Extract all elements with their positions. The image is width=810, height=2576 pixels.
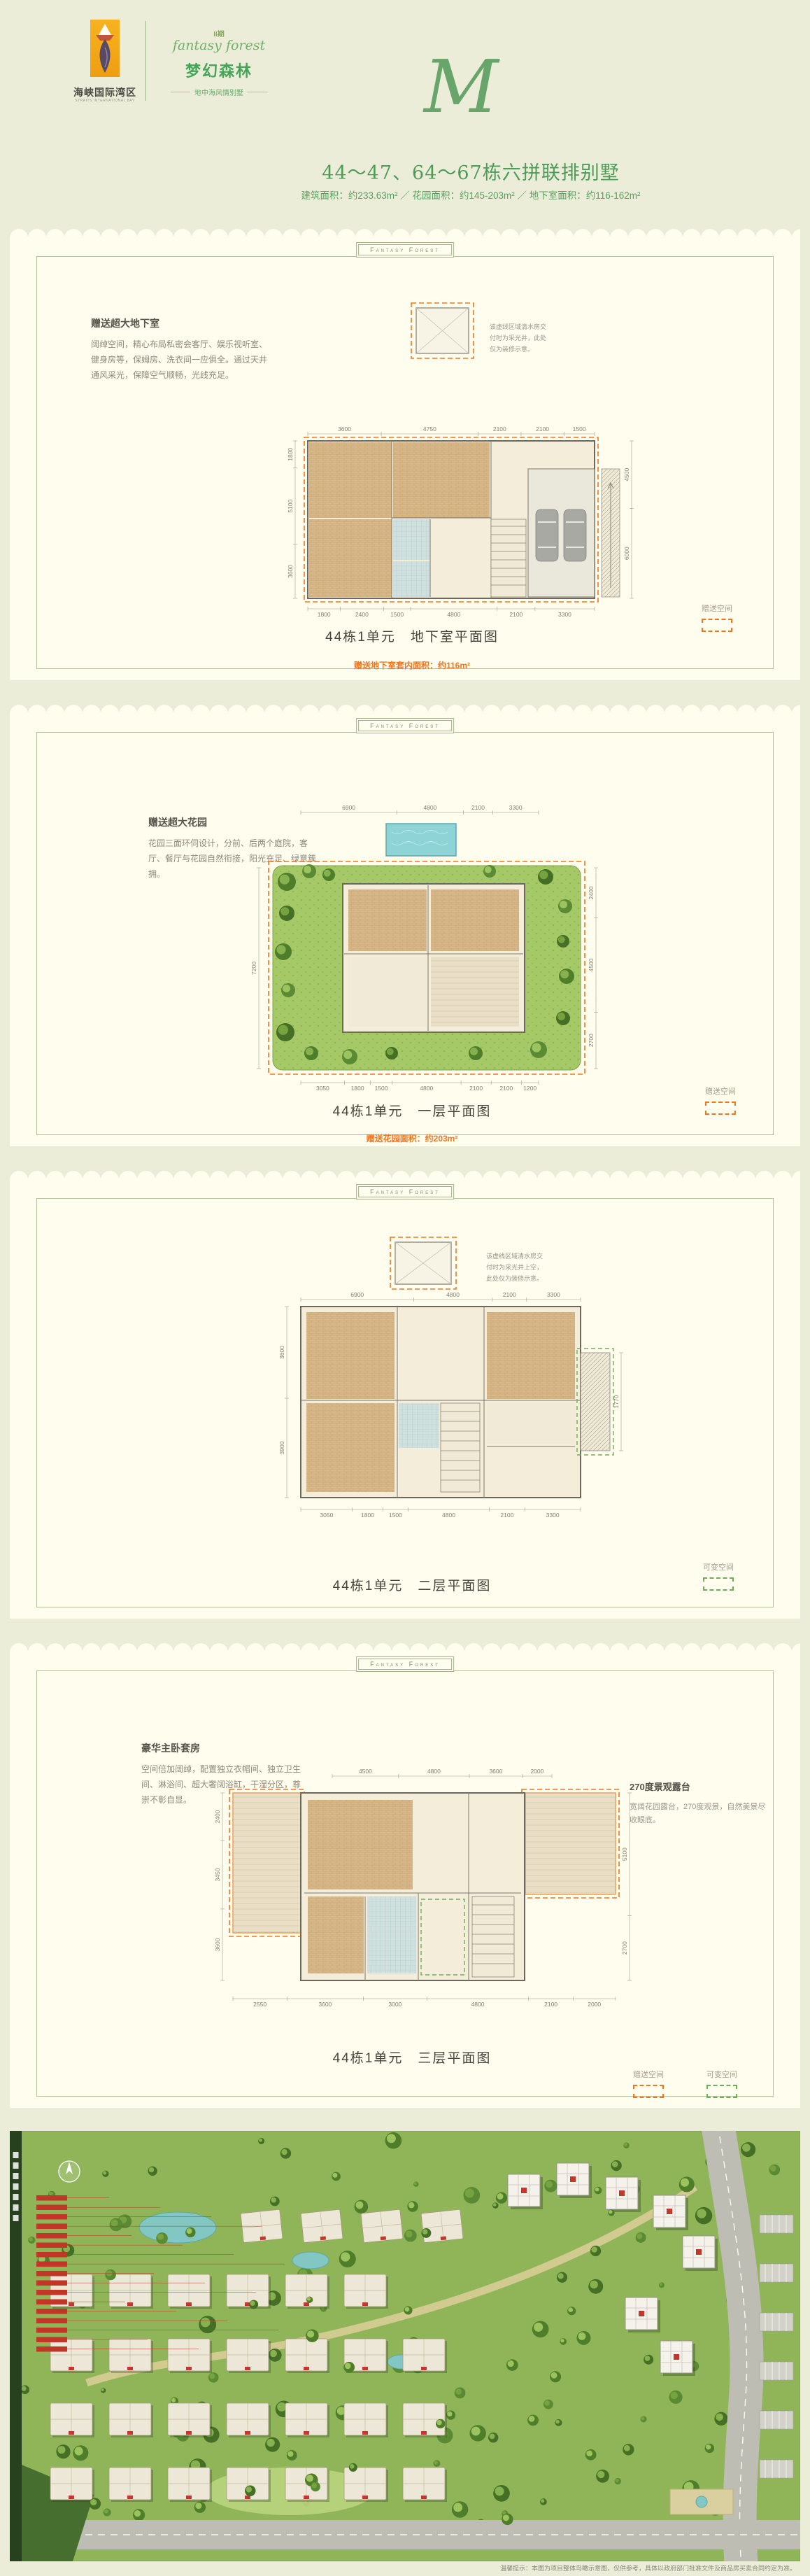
plan-caption: 44栋1单元 地下室平面图 赠送地下室套内面积：约116m²	[216, 626, 608, 671]
caption-sub: 赠送地下室套内面积：约116m²	[216, 659, 608, 671]
svg-text:3600: 3600	[318, 2001, 332, 2008]
legend-label: 赠送空间	[702, 603, 732, 614]
svg-text:2550: 2550	[253, 2001, 267, 2008]
legend-label: 可变空间	[706, 2069, 737, 2080]
ribbon-badge: Fantasy Forest	[356, 718, 454, 733]
ribbon-label: Fantasy Forest	[358, 720, 452, 731]
svg-text:4800: 4800	[420, 1085, 433, 1092]
svg-text:3600: 3600	[278, 1346, 285, 1359]
brochure-page: 海峡国际湾区 STRAITS INTERNATIONAL BAY II期 fan…	[0, 0, 810, 2576]
brand-name-en: STRAITS INTERNATIONAL BAY	[67, 99, 143, 103]
site-master-plan	[10, 2131, 800, 2561]
svg-text:4750: 4750	[423, 425, 436, 432]
caption-sub: 赠送花园面积：约203m²	[216, 1132, 608, 1144]
svg-text:5100: 5100	[621, 1847, 628, 1861]
svg-text:2700: 2700	[621, 1941, 628, 1955]
svg-text:3050: 3050	[316, 1085, 329, 1092]
svg-text:2100: 2100	[471, 804, 485, 811]
compass-icon	[59, 2161, 80, 2182]
page-title: 44～47、64～67栋六拼联排别墅	[135, 157, 807, 185]
ribbon-label: Fantasy Forest	[358, 244, 452, 255]
svg-text:2000: 2000	[530, 1768, 543, 1775]
svg-text:4800: 4800	[446, 1291, 460, 1298]
feature-title: 赠送超大地下室	[91, 316, 271, 330]
svg-text:3000: 3000	[388, 2001, 402, 2008]
svg-text:3600: 3600	[489, 1768, 502, 1775]
legend-flex-space: 可变空间	[703, 1561, 734, 1591]
svg-text:3600: 3600	[214, 1938, 221, 1951]
plan-caption: 44栋1单元 三层平面图	[216, 2048, 608, 2067]
svg-text:4800: 4800	[471, 2001, 485, 2008]
project-tagline: 地中海风情别墅	[145, 87, 292, 97]
tagline-rule-right	[248, 92, 267, 92]
ribbon-badge: Fantasy Forest	[356, 1184, 454, 1199]
leaf-logo-icon	[90, 20, 120, 77]
legend-swatch-green-dashed	[703, 1577, 734, 1591]
plan-caption: 44栋1单元 一层平面图 赠送花园面积：约203m²	[216, 1101, 608, 1144]
svg-text:4800: 4800	[447, 611, 460, 618]
tagline-text: 地中海风情别墅	[194, 87, 243, 97]
legend-gift-space: 赠送空间	[633, 2069, 664, 2098]
feature-basement: 赠送超大地下室 阔绰空间，精心布局私密会客厅、娱乐视听室、健身房等，保姆房、洗衣…	[91, 316, 271, 383]
svg-text:4500: 4500	[588, 958, 595, 971]
legend-swatch-green-dashed	[706, 2085, 737, 2098]
svg-text:6900: 6900	[342, 804, 355, 811]
svg-text:3050: 3050	[320, 1512, 333, 1519]
svg-text:2100: 2100	[469, 1085, 483, 1092]
svg-text:1800: 1800	[351, 1085, 364, 1092]
svg-text:1770: 1770	[613, 1395, 620, 1408]
legend-gift-space: 赠送空间	[705, 1085, 736, 1115]
page-subtitle: 建筑面积：约233.63m² ／ 花园面积：约145-203m² ／ 地下室面积…	[135, 188, 807, 202]
svg-text:3300: 3300	[546, 1512, 560, 1519]
caption-main: 44栋1单元 三层平面图	[216, 2048, 608, 2067]
svg-text:3300: 3300	[547, 1291, 560, 1298]
caption-main: 44栋1单元 一层平面图	[216, 1101, 608, 1120]
brand-name-cn: 海峡国际湾区	[67, 85, 143, 99]
second-floor-plan: 6900480021003300 30501800150048002100330…	[266, 1228, 630, 1585]
svg-text:2400: 2400	[355, 611, 369, 618]
svg-text:6900: 6900	[350, 1291, 364, 1298]
legend-gift-space: 赠送空间	[702, 603, 732, 632]
svg-text:1200: 1200	[523, 1085, 537, 1092]
ribbon-badge: Fantasy Forest	[356, 242, 454, 258]
disclaimer-text: 温馨提示：本图为项目整体鸟瞰示意图，仅供参考，具体以政府部门批准文件及商品房买卖…	[500, 2563, 796, 2573]
legend-swatch-orange-dashed	[705, 1102, 736, 1115]
svg-text:1500: 1500	[573, 425, 586, 432]
ribbon-badge: Fantasy Forest	[356, 1656, 454, 1672]
phase-label: II期	[166, 28, 271, 38]
svg-text:3300: 3300	[558, 611, 571, 618]
svg-text:4500: 4500	[623, 467, 630, 481]
svg-text:2700: 2700	[588, 1034, 595, 1047]
caption-main: 44栋1单元 地下室平面图	[216, 626, 608, 645]
svg-text:1800: 1800	[361, 1512, 374, 1519]
third-floor-plan: 4500480036002000 25503600300048002100200…	[210, 1750, 658, 2050]
svg-text:6000: 6000	[623, 547, 630, 560]
monogram-m: M	[424, 50, 499, 123]
svg-text:4800: 4800	[442, 1512, 455, 1519]
svg-text:5100: 5100	[287, 499, 294, 512]
svg-text:2400: 2400	[588, 886, 595, 899]
svg-text:4800: 4800	[427, 1768, 441, 1775]
site-name-banner	[10, 2131, 22, 2561]
legend-flex-space: 可变空间	[706, 2069, 737, 2098]
svg-text:7200: 7200	[250, 962, 257, 975]
svg-text:1800: 1800	[287, 448, 294, 461]
svg-text:1500: 1500	[375, 1085, 388, 1092]
svg-text:2100: 2100	[493, 425, 506, 432]
ribbon-label: Fantasy Forest	[358, 1659, 452, 1670]
svg-text:3600: 3600	[338, 425, 351, 432]
svg-text:2100: 2100	[499, 1085, 513, 1092]
ribbon-label: Fantasy Forest	[358, 1186, 452, 1197]
svg-text:1800: 1800	[318, 611, 331, 618]
svg-text:2400: 2400	[214, 1810, 221, 1823]
svg-text:1500: 1500	[390, 611, 404, 618]
svg-text:3450: 3450	[214, 1868, 221, 1881]
feature-body: 阔绰空间，精心布局私密会客厅、娱乐视听室、健身房等，保姆房、洗衣间一应俱全。通过…	[91, 337, 271, 383]
legend-label: 赠送空间	[633, 2069, 664, 2080]
brand-logo	[90, 20, 120, 77]
svg-text:3300: 3300	[509, 804, 523, 811]
svg-text:2100: 2100	[544, 2001, 557, 2008]
svg-text:2100: 2100	[500, 1512, 513, 1519]
svg-text:3600: 3600	[287, 565, 294, 578]
svg-text:4800: 4800	[423, 804, 436, 811]
legend-label: 赠送空间	[705, 1085, 736, 1097]
svg-text:4500: 4500	[359, 1768, 372, 1775]
svg-text:3900: 3900	[278, 1441, 285, 1454]
legend-swatch-orange-dashed	[633, 2085, 664, 2098]
legend-label: 可变空间	[703, 1561, 734, 1572]
project-name-en: fantasy forest	[159, 38, 278, 53]
svg-text:2100: 2100	[503, 1291, 516, 1298]
legend-swatch-orange-dashed	[702, 619, 732, 632]
project-name-cn: 梦幻森林	[166, 59, 271, 81]
svg-text:2100: 2100	[536, 425, 549, 432]
svg-text:1500: 1500	[389, 1512, 402, 1519]
basement-floor-plan: 36004750210021001500 1800240015004800210…	[280, 301, 644, 623]
svg-text:2000: 2000	[588, 2001, 601, 2008]
tagline-rule-left	[171, 92, 190, 92]
svg-text:2100: 2100	[509, 611, 523, 618]
first-floor-plan: 6900480021003300 30501800150048002100210…	[245, 801, 609, 1095]
